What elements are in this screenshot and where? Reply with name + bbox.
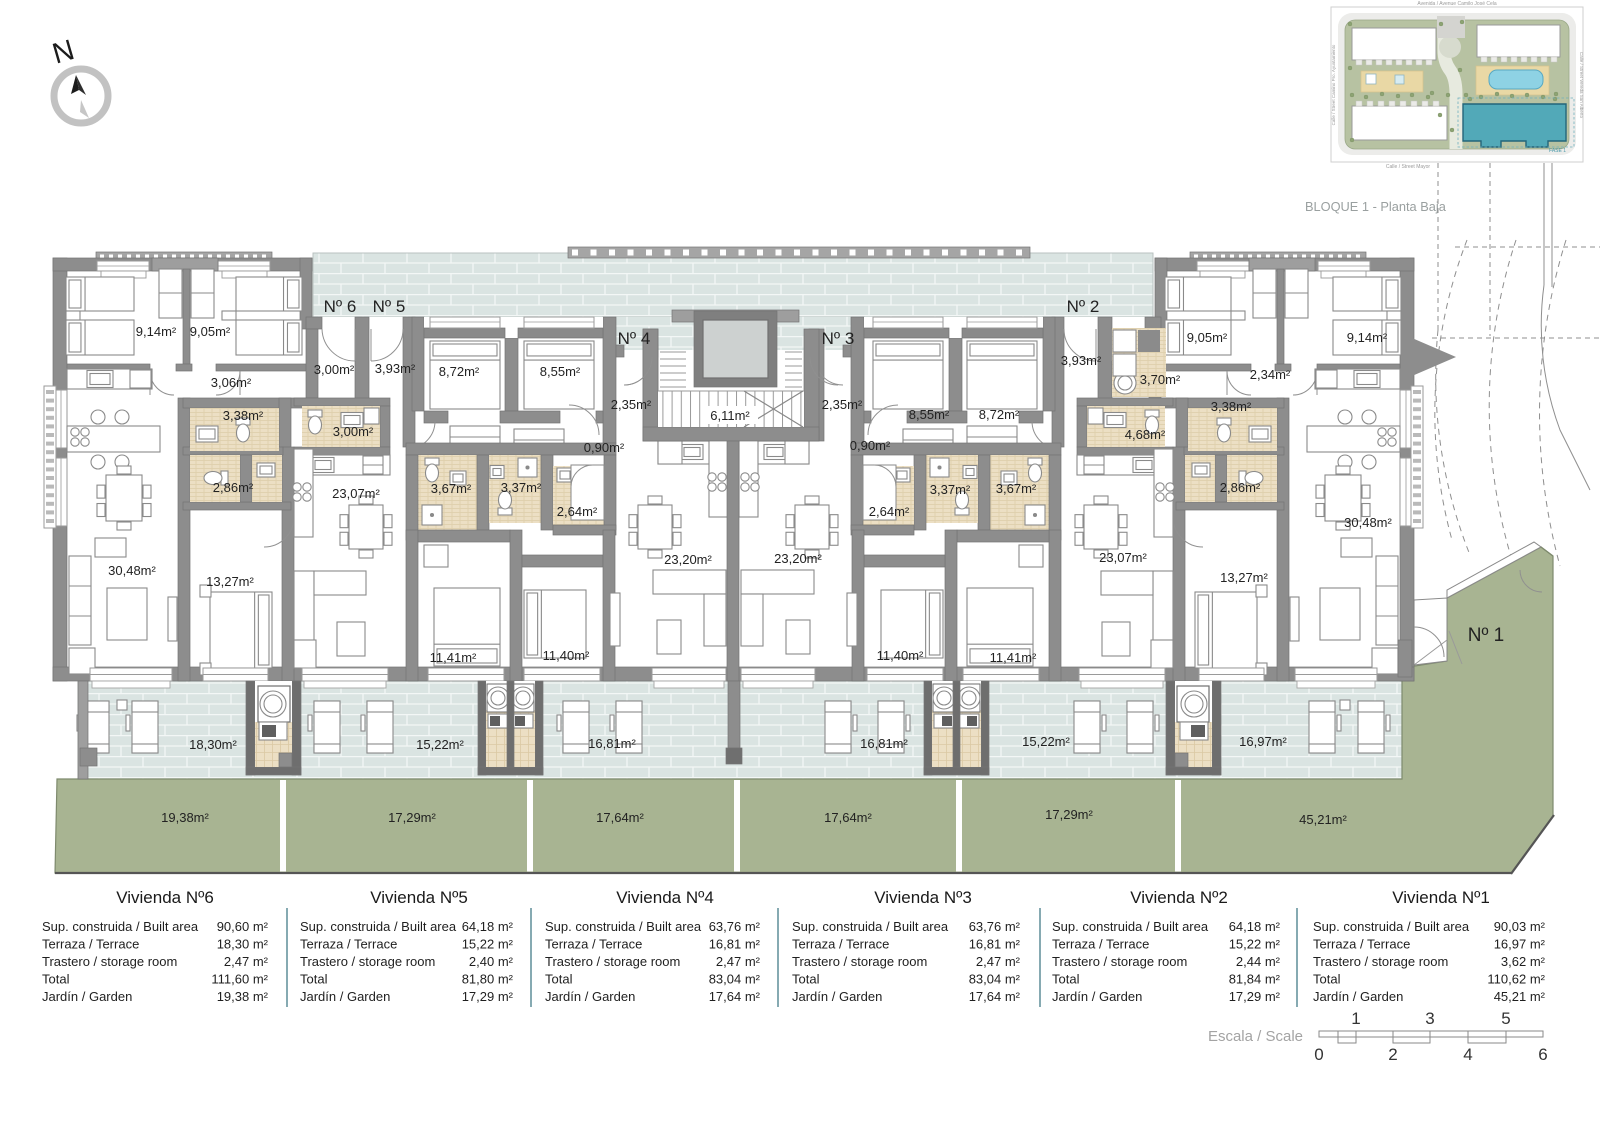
svg-text:BLOQUE 1 - Planta Baja: BLOQUE 1 - Planta Baja — [1305, 199, 1447, 214]
svg-text:2,34m²: 2,34m² — [1250, 367, 1291, 382]
svg-text:Vivienda Nº1: Vivienda Nº1 — [1392, 888, 1490, 907]
svg-text:19,38m²: 19,38m² — [161, 810, 209, 825]
svg-text:23,07m²: 23,07m² — [1099, 550, 1147, 565]
svg-text:4: 4 — [1463, 1045, 1472, 1064]
svg-text:2: 2 — [1388, 1045, 1397, 1064]
svg-text:17,29 m²: 17,29 m² — [462, 989, 514, 1004]
svg-text:8,72m²: 8,72m² — [439, 364, 480, 379]
svg-text:3,70m²: 3,70m² — [1140, 372, 1181, 387]
svg-text:63,76 m²: 63,76 m² — [969, 919, 1021, 934]
svg-text:17,29m²: 17,29m² — [1045, 807, 1093, 822]
svg-text:Trastero / storage room: Trastero / storage room — [1313, 954, 1448, 969]
svg-text:90,03 m²: 90,03 m² — [1494, 919, 1546, 934]
svg-text:0,90m²: 0,90m² — [850, 438, 891, 453]
svg-text:Trastero / storage room: Trastero / storage room — [1052, 954, 1187, 969]
svg-text:Nº 5: Nº 5 — [373, 297, 406, 316]
svg-text:Sup. construida / Built area: Sup. construida / Built area — [300, 919, 457, 934]
svg-text:3,38m²: 3,38m² — [1211, 399, 1252, 414]
svg-text:81,80 m²: 81,80 m² — [462, 972, 514, 987]
svg-text:16,81m²: 16,81m² — [588, 736, 636, 751]
svg-text:18,30m²: 18,30m² — [189, 737, 237, 752]
svg-text:9,14m²: 9,14m² — [136, 324, 177, 339]
svg-text:3,00m²: 3,00m² — [333, 424, 374, 439]
svg-text:64,18 m²: 64,18 m² — [1229, 919, 1281, 934]
svg-text:3,62 m²: 3,62 m² — [1501, 954, 1546, 969]
svg-text:15,22 m²: 15,22 m² — [462, 937, 514, 952]
svg-text:8,72m²: 8,72m² — [979, 407, 1020, 422]
svg-text:2,35m²: 2,35m² — [611, 397, 652, 412]
svg-text:Sup. construida / Built area: Sup. construida / Built area — [545, 919, 702, 934]
svg-text:Terraza / Terrace: Terraza / Terrace — [1052, 937, 1149, 952]
svg-text:23,07m²: 23,07m² — [332, 486, 380, 501]
svg-text:6: 6 — [1538, 1045, 1547, 1064]
svg-text:Total: Total — [1313, 972, 1341, 987]
svg-text:3,93m²: 3,93m² — [375, 361, 416, 376]
svg-text:0,90m²: 0,90m² — [584, 440, 625, 455]
svg-text:30,48m²: 30,48m² — [108, 563, 156, 578]
svg-text:0: 0 — [1314, 1045, 1323, 1064]
svg-text:2,86m²: 2,86m² — [1220, 480, 1261, 495]
svg-text:2,64m²: 2,64m² — [869, 504, 910, 519]
svg-text:Trastero / storage room: Trastero / storage room — [792, 954, 927, 969]
svg-text:Nº 6: Nº 6 — [324, 297, 357, 316]
svg-text:63,76 m²: 63,76 m² — [709, 919, 761, 934]
svg-text:16,81m²: 16,81m² — [860, 736, 908, 751]
svg-text:Vivienda Nº3: Vivienda Nº3 — [874, 888, 972, 907]
svg-text:11,41m²: 11,41m² — [430, 650, 477, 665]
svg-text:30,48m²: 30,48m² — [1344, 515, 1392, 530]
svg-text:23,20m²: 23,20m² — [774, 551, 822, 566]
svg-text:17,64m²: 17,64m² — [596, 810, 644, 825]
svg-text:17,64 m²: 17,64 m² — [969, 989, 1021, 1004]
svg-text:Jardín / Garden: Jardín / Garden — [42, 989, 132, 1004]
svg-text:Sup. construida / Built area: Sup. construida / Built area — [1313, 919, 1470, 934]
svg-text:Nº 3: Nº 3 — [822, 329, 855, 348]
svg-text:111,60 m²: 111,60 m² — [211, 972, 268, 987]
svg-text:3: 3 — [1425, 1009, 1434, 1028]
svg-text:16,81 m²: 16,81 m² — [709, 937, 761, 952]
svg-text:11,40m²: 11,40m² — [877, 648, 924, 663]
svg-text:Jardín / Garden: Jardín / Garden — [300, 989, 390, 1004]
svg-text:2,47 m²: 2,47 m² — [716, 954, 761, 969]
svg-text:2,64m²: 2,64m² — [557, 504, 598, 519]
svg-text:6,11m²: 6,11m² — [710, 408, 750, 423]
svg-text:Sup. construida / Built area: Sup. construida / Built area — [792, 919, 949, 934]
svg-text:8,55m²: 8,55m² — [540, 364, 581, 379]
svg-text:81,84 m²: 81,84 m² — [1229, 972, 1281, 987]
svg-text:Trastero / storage room: Trastero / storage room — [300, 954, 435, 969]
svg-text:Jardín / Garden: Jardín / Garden — [545, 989, 635, 1004]
svg-text:Total: Total — [1052, 972, 1080, 987]
svg-text:2,40 m²: 2,40 m² — [469, 954, 514, 969]
svg-text:17,29m²: 17,29m² — [388, 810, 436, 825]
svg-text:Nº 4: Nº 4 — [618, 329, 651, 348]
svg-text:Calle / Street Vereda San Albe: Calle / Street Vereda San Alberto — [1579, 52, 1584, 119]
svg-text:3,38m²: 3,38m² — [223, 408, 264, 423]
svg-text:11,41m²: 11,41m² — [990, 650, 1037, 665]
svg-text:Sup. construida / Built area: Sup. construida / Built area — [42, 919, 199, 934]
svg-text:2,44 m²: 2,44 m² — [1236, 954, 1281, 969]
svg-text:3,93m²: 3,93m² — [1061, 353, 1102, 368]
svg-text:64,18 m²: 64,18 m² — [462, 919, 514, 934]
svg-text:2,47 m²: 2,47 m² — [224, 954, 269, 969]
svg-text:83,04 m²: 83,04 m² — [709, 972, 761, 987]
svg-text:90,60 m²: 90,60 m² — [217, 919, 269, 934]
svg-text:5: 5 — [1501, 1009, 1510, 1028]
svg-text:Vivienda Nº5: Vivienda Nº5 — [370, 888, 468, 907]
svg-text:9,05m²: 9,05m² — [190, 324, 231, 339]
svg-text:17,64m²: 17,64m² — [824, 810, 872, 825]
svg-text:16,97 m²: 16,97 m² — [1494, 937, 1546, 952]
svg-text:Jardín / Garden: Jardín / Garden — [1313, 989, 1403, 1004]
svg-text:Jardín / Garden: Jardín / Garden — [1052, 989, 1142, 1004]
svg-text:Sup. construida / Built area: Sup. construida / Built area — [1052, 919, 1209, 934]
svg-text:3,67m²: 3,67m² — [431, 481, 472, 496]
svg-text:FASE 1: FASE 1 — [1549, 148, 1566, 154]
svg-text:45,21m²: 45,21m² — [1299, 812, 1347, 827]
svg-text:19,38 m²: 19,38 m² — [217, 989, 269, 1004]
svg-text:15,22m²: 15,22m² — [1022, 734, 1070, 749]
svg-text:16,97m²: 16,97m² — [1239, 734, 1287, 749]
svg-text:15,22 m²: 15,22 m² — [1229, 937, 1281, 952]
svg-text:2,86m²: 2,86m² — [213, 480, 254, 495]
svg-text:83,04 m²: 83,04 m² — [969, 972, 1021, 987]
svg-text:Jardín / Garden: Jardín / Garden — [792, 989, 882, 1004]
svg-text:Total: Total — [545, 972, 573, 987]
svg-text:13,27m²: 13,27m² — [1220, 570, 1268, 585]
svg-text:Vivienda Nº4: Vivienda Nº4 — [616, 888, 714, 907]
svg-text:Terraza / Terrace: Terraza / Terrace — [42, 937, 139, 952]
svg-text:9,14m²: 9,14m² — [1347, 330, 1388, 345]
svg-text:Calle / Street Camino Pro. Ayu: Calle / Street Camino Pro. Ayuntamiento — [1331, 44, 1336, 125]
svg-text:Nº 2: Nº 2 — [1067, 297, 1100, 316]
svg-text:Terraza / Terrace: Terraza / Terrace — [545, 937, 642, 952]
svg-text:2,47 m²: 2,47 m² — [976, 954, 1021, 969]
svg-text:1: 1 — [1351, 1009, 1360, 1028]
svg-text:Escala / Scale: Escala / Scale — [1208, 1028, 1303, 1045]
svg-text:Terraza / Terrace: Terraza / Terrace — [1313, 937, 1410, 952]
svg-text:13,27m²: 13,27m² — [206, 574, 254, 589]
svg-text:Total: Total — [42, 972, 70, 987]
svg-text:Vivienda Nº6: Vivienda Nº6 — [116, 888, 214, 907]
svg-text:Total: Total — [792, 972, 820, 987]
svg-text:3,37m²: 3,37m² — [501, 480, 542, 495]
svg-text:3,37m²: 3,37m² — [930, 482, 971, 497]
svg-text:Avenida / Avenue Camilo José C: Avenida / Avenue Camilo José Cela — [1417, 1, 1497, 7]
svg-text:110,62 m²: 110,62 m² — [1487, 972, 1545, 987]
svg-text:Total: Total — [300, 972, 328, 987]
svg-text:23,20m²: 23,20m² — [664, 552, 712, 567]
svg-text:45,21 m²: 45,21 m² — [1494, 989, 1546, 1004]
svg-text:Calle / Street Mayor: Calle / Street Mayor — [1386, 164, 1431, 170]
svg-text:3,67m²: 3,67m² — [996, 481, 1037, 496]
svg-text:3,00m²: 3,00m² — [314, 362, 355, 377]
svg-text:Terraza / Terrace: Terraza / Terrace — [300, 937, 397, 952]
svg-text:18,30 m²: 18,30 m² — [217, 937, 269, 952]
svg-text:3,06m²: 3,06m² — [211, 375, 252, 390]
svg-text:2,35m²: 2,35m² — [822, 397, 863, 412]
svg-text:Trastero / storage room: Trastero / storage room — [545, 954, 680, 969]
svg-text:15,22m²: 15,22m² — [416, 737, 464, 752]
svg-text:8,55m²: 8,55m² — [909, 407, 950, 422]
svg-text:17,64 m²: 17,64 m² — [709, 989, 761, 1004]
svg-text:11,40m²: 11,40m² — [543, 648, 590, 663]
svg-text:16,81 m²: 16,81 m² — [969, 937, 1021, 952]
svg-text:17,29 m²: 17,29 m² — [1229, 989, 1281, 1004]
svg-text:9,05m²: 9,05m² — [1187, 330, 1228, 345]
svg-text:Vivienda Nº2: Vivienda Nº2 — [1130, 888, 1228, 907]
svg-text:4,68m²: 4,68m² — [1125, 427, 1166, 442]
svg-text:Trastero / storage room: Trastero / storage room — [42, 954, 177, 969]
svg-text:Nº 1: Nº 1 — [1468, 625, 1505, 646]
svg-text:Terraza / Terrace: Terraza / Terrace — [792, 937, 889, 952]
